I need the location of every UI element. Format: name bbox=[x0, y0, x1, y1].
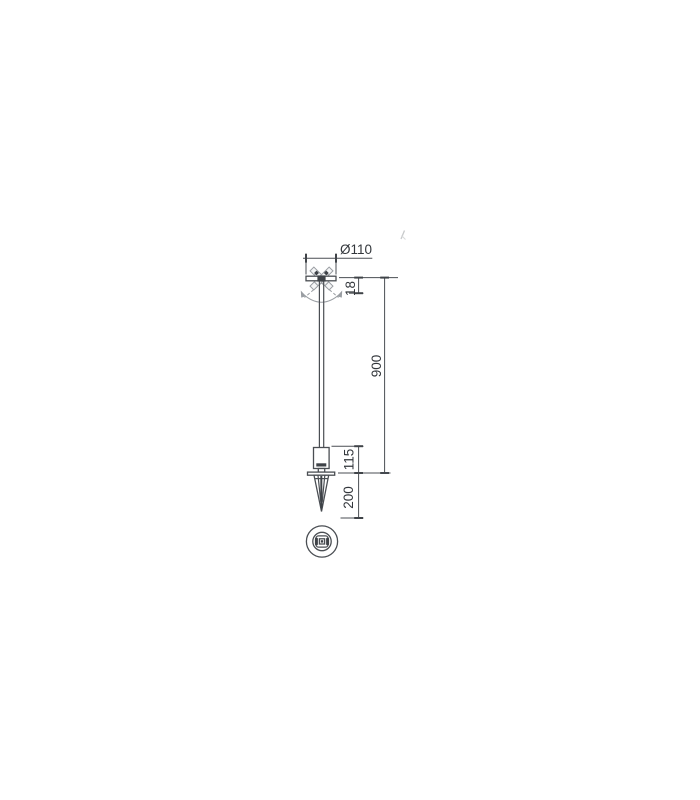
dimension-label-overall-height: 900 bbox=[369, 355, 384, 378]
top-view-center-dot bbox=[321, 540, 323, 542]
dimension-head-height: 18 bbox=[339, 278, 398, 296]
swivel-knuckle bbox=[317, 275, 325, 281]
mounting-pole bbox=[319, 282, 323, 448]
junction-box bbox=[308, 448, 335, 476]
junction-box-latch bbox=[316, 463, 326, 466]
technical-drawing: Ø110 18 900 115 bbox=[0, 0, 700, 800]
dimension-body-height: 115 bbox=[332, 446, 364, 473]
top-view-clamp-right bbox=[326, 538, 329, 546]
top-view bbox=[306, 526, 337, 557]
ground-spike bbox=[314, 475, 329, 511]
dimension-spike-depth: 200 bbox=[341, 473, 364, 518]
dimension-label-head-diameter: Ø110 bbox=[340, 242, 372, 257]
stray-mark bbox=[401, 231, 406, 240]
dimension-label-head-height: 18 bbox=[343, 281, 358, 296]
dimension-label-body-height: 115 bbox=[341, 449, 356, 471]
image-canvas: Ø110 18 900 115 bbox=[0, 0, 700, 800]
dimension-overall-height: 900 bbox=[369, 278, 389, 473]
top-view-clamp-left bbox=[315, 538, 318, 546]
dimension-label-spike-depth: 200 bbox=[341, 486, 356, 509]
